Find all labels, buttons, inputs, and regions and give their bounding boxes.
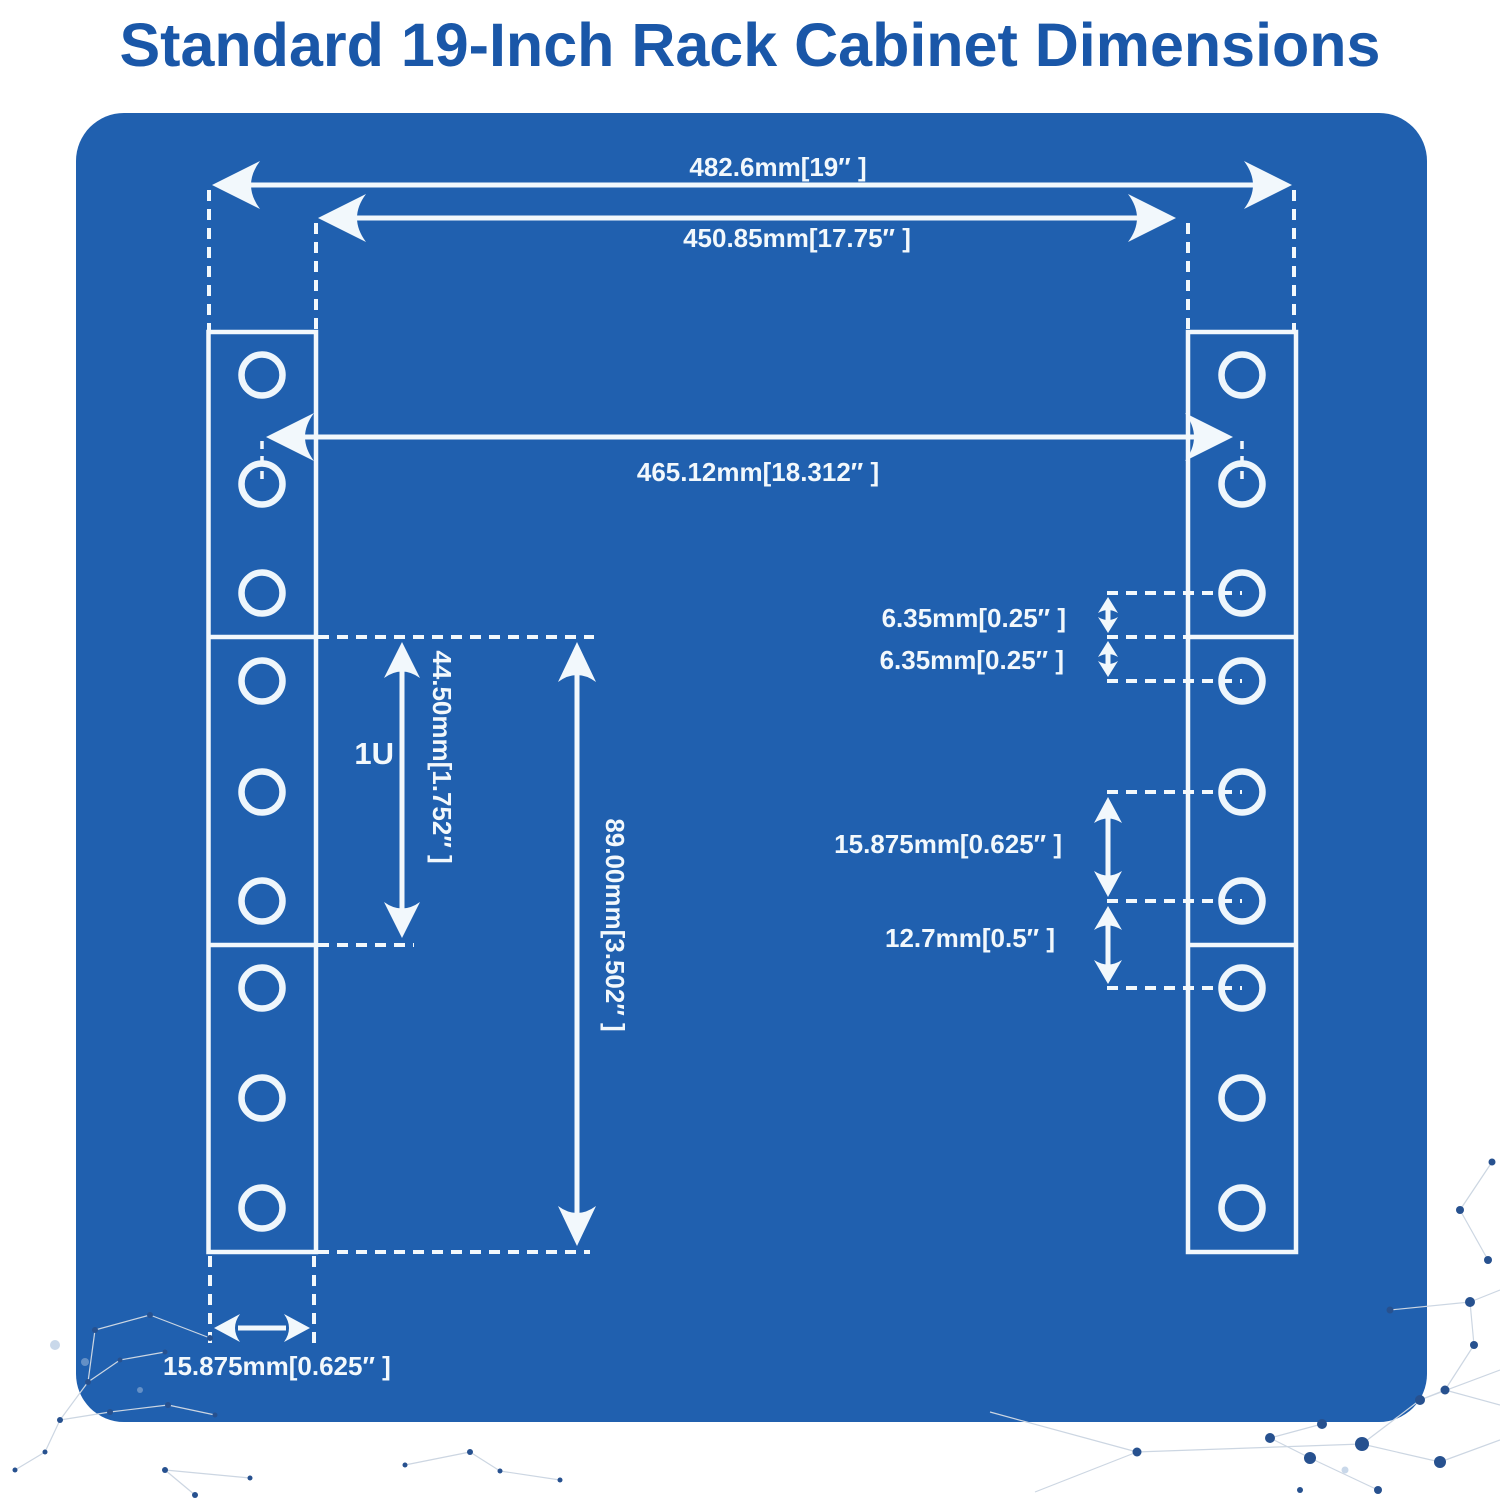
dim-edge-to-hole-lower-label: 6.35mm[0.25″ ] [880, 645, 1064, 675]
blueprint-panel [76, 113, 1427, 1422]
dim-hole-center-width-label: 465.12mm[18.312″ ] [637, 457, 879, 487]
dim-mid-width-label: 450.85mm[17.75″ ] [683, 223, 911, 253]
dim-two-unit-height-label: 89.00mm[3.502″ ] [600, 818, 630, 1031]
rack-dimensions-diagram: 482.6mm[19″ ] 450.85mm[17.75″ ] 465.12mm… [0, 0, 1500, 1500]
rack-unit-label: 1U [354, 736, 394, 771]
dim-edge-to-hole-upper-label: 6.35mm[0.25″ ] [882, 603, 1066, 633]
dim-outer-width-label: 482.6mm[19″ ] [689, 152, 866, 182]
dim-hole-pitch-wide-label: 15.875mm[0.625″ ] [834, 829, 1062, 859]
dim-rack-unit-height-label: 44.50mm[1.752″ ] [427, 650, 457, 863]
dim-hole-pitch-narrow-label: 12.7mm[0.5″ ] [885, 923, 1055, 953]
page: Standard 19-Inch Rack Cabinet Dimensions [0, 0, 1500, 1500]
dim-rail-flange-label: 15.875mm[0.625″ ] [163, 1351, 391, 1381]
